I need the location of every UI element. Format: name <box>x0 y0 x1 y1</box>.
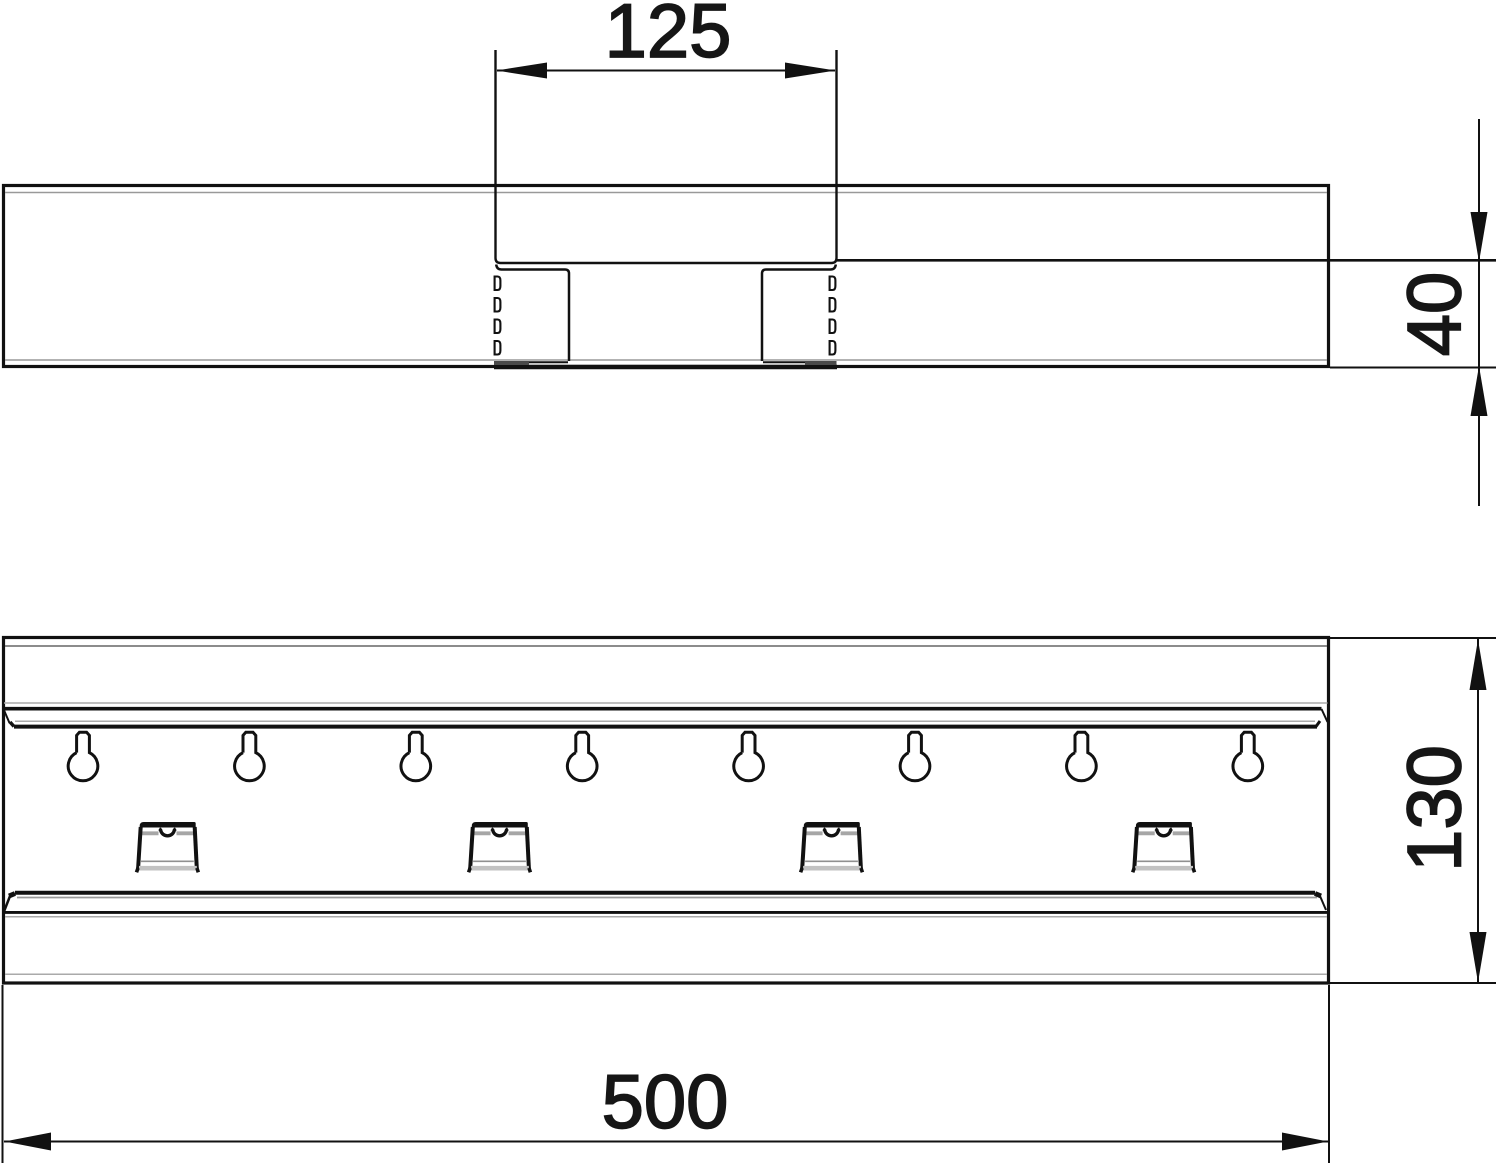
svg-text:130: 130 <box>1393 745 1478 872</box>
svg-text:40: 40 <box>1393 272 1478 357</box>
svg-text:125: 125 <box>605 0 732 74</box>
svg-text:500: 500 <box>602 1060 729 1145</box>
